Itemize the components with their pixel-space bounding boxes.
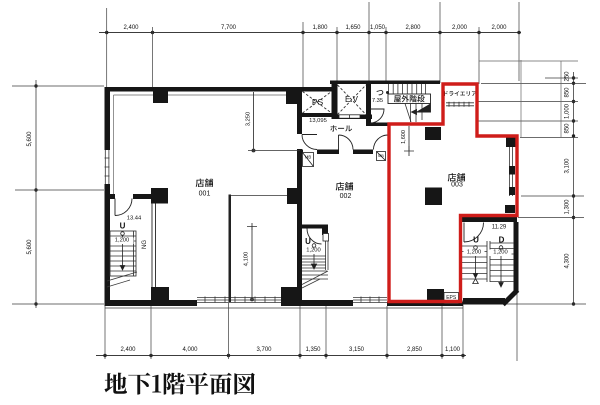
svg-text:1,600: 1,600 (401, 130, 407, 144)
svg-text:1,650: 1,650 (345, 25, 361, 31)
svg-text:1,800: 1,800 (312, 25, 328, 31)
svg-text:PS: PS (312, 97, 324, 107)
svg-text:E.V: E.V (345, 95, 359, 104)
svg-text:3,250: 3,250 (246, 112, 252, 127)
svg-text:4,100: 4,100 (244, 252, 250, 267)
svg-text:003: 003 (451, 181, 463, 188)
svg-text:11.29: 11.29 (492, 225, 507, 231)
svg-text:1,000: 1,000 (565, 103, 571, 119)
svg-text:2,850: 2,850 (407, 347, 423, 353)
svg-text:1,200: 1,200 (115, 238, 130, 244)
svg-text:1,200: 1,200 (306, 248, 321, 254)
svg-text:2,000: 2,000 (452, 25, 468, 31)
svg-text:001: 001 (199, 190, 211, 197)
svg-text:850: 850 (565, 87, 571, 98)
svg-text:1,350: 1,350 (305, 347, 321, 353)
svg-text:NG: NG (142, 240, 148, 249)
svg-text:850: 850 (565, 123, 571, 134)
svg-text:13,095: 13,095 (309, 118, 327, 124)
svg-text:1,100: 1,100 (445, 347, 461, 353)
svg-text:1,200: 1,200 (493, 250, 508, 256)
svg-text:MB: MB (378, 154, 384, 158)
svg-text:250: 250 (565, 71, 571, 82)
svg-text:2,000: 2,000 (491, 25, 507, 31)
svg-text:2,400: 2,400 (123, 25, 139, 31)
svg-text:4,000: 4,000 (182, 347, 198, 353)
svg-text:3,100: 3,100 (565, 158, 571, 174)
svg-text:5,600: 5,600 (27, 131, 33, 147)
svg-text:U: U (305, 237, 311, 246)
svg-text:1,050: 1,050 (370, 25, 386, 31)
svg-text:3,700: 3,700 (256, 347, 272, 353)
svg-text:002: 002 (340, 193, 352, 200)
svg-text:7,700: 7,700 (221, 25, 237, 31)
svg-text:1,200: 1,200 (467, 250, 482, 256)
svg-text:MB: MB (305, 155, 311, 160)
svg-text:3,150: 3,150 (349, 347, 365, 353)
svg-text:5,600: 5,600 (27, 239, 33, 255)
svg-text:4,300: 4,300 (565, 253, 571, 269)
svg-text:U: U (473, 235, 479, 244)
svg-text:2,800: 2,800 (405, 25, 421, 31)
svg-text:7.35: 7.35 (372, 98, 383, 104)
svg-text:1,300: 1,300 (565, 199, 571, 215)
svg-text:2,400: 2,400 (120, 347, 136, 353)
svg-text:13.44: 13.44 (127, 216, 142, 222)
svg-text:U: U (120, 222, 126, 231)
